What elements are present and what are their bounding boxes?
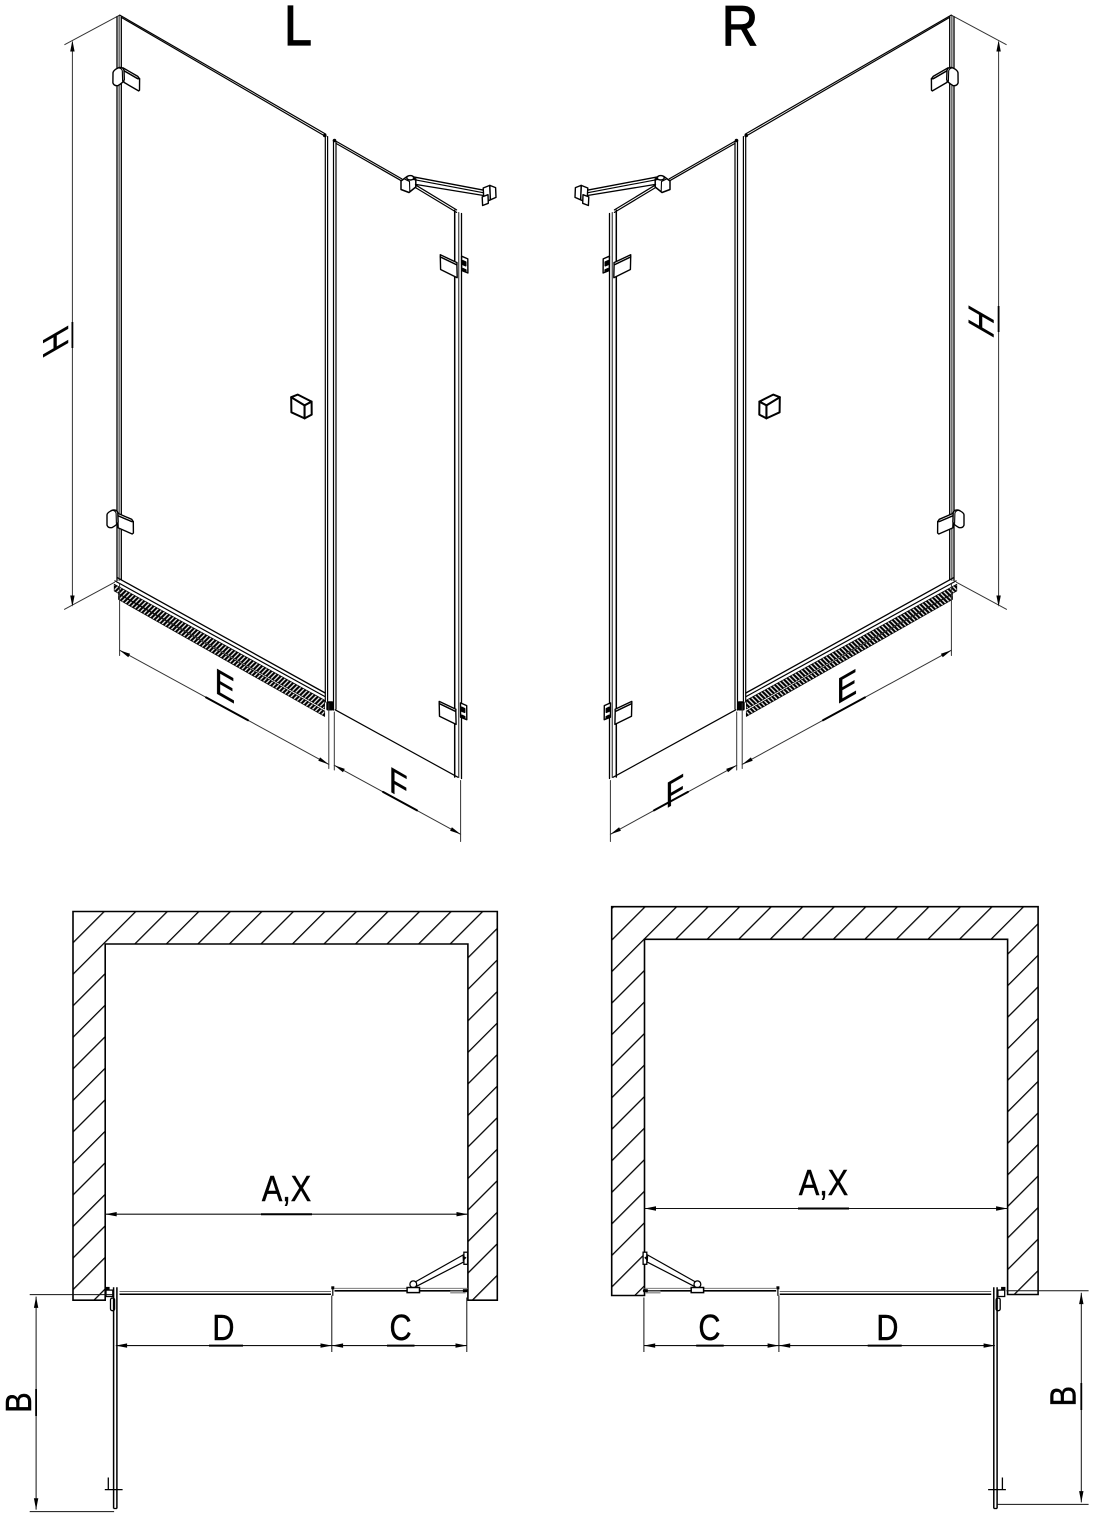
svg-text:A,X: A,X [799, 1164, 848, 1204]
svg-text:R: R [722, 0, 758, 58]
svg-text:A,X: A,X [262, 1170, 311, 1210]
svg-text:D: D [212, 1309, 234, 1349]
svg-text:B: B [1044, 1386, 1084, 1406]
svg-text:D: D [876, 1309, 898, 1349]
svg-text:B: B [0, 1392, 39, 1412]
svg-text:C: C [390, 1309, 412, 1349]
svg-text:L: L [284, 0, 312, 58]
svg-text:C: C [698, 1309, 720, 1349]
